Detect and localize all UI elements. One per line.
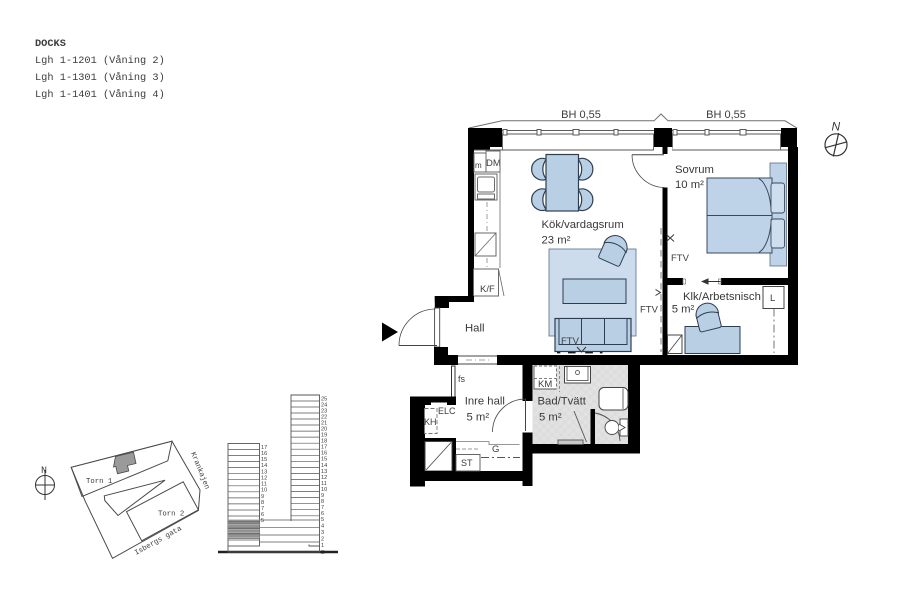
svg-text:FTV: FTV xyxy=(671,253,690,264)
svg-text:17: 17 xyxy=(321,445,327,451)
svg-text:Kök/vardagsrum: Kök/vardagsrum xyxy=(542,219,624,231)
svg-text:DM: DM xyxy=(486,158,501,169)
svg-text:11: 11 xyxy=(321,481,327,487)
svg-text:DOCKS: DOCKS xyxy=(35,38,66,50)
svg-text:5: 5 xyxy=(261,518,264,524)
svg-text:KH: KH xyxy=(424,417,437,427)
svg-text:Bad/Tvätt: Bad/Tvätt xyxy=(538,396,587,408)
svg-text:Krankajen: Krankajen xyxy=(188,451,210,491)
svg-text:2: 2 xyxy=(321,537,324,543)
svg-text:m: m xyxy=(475,161,482,170)
svg-text:1: 1 xyxy=(321,543,324,549)
svg-text:Inre hall: Inre hall xyxy=(465,396,505,408)
svg-text:Torn 2: Torn 2 xyxy=(158,511,184,519)
svg-text:G: G xyxy=(492,444,499,455)
svg-text:3: 3 xyxy=(321,530,324,536)
svg-text:5 m²: 5 m² xyxy=(539,412,562,424)
svg-text:BH 0,55: BH 0,55 xyxy=(706,109,746,121)
svg-text:BH 0,55: BH 0,55 xyxy=(561,109,601,121)
svg-text:KM: KM xyxy=(538,379,552,390)
svg-text:K/F: K/F xyxy=(480,284,495,295)
svg-text:Klk/Arbetsnisch: Klk/Arbetsnisch xyxy=(683,291,761,303)
svg-text:10 m²: 10 m² xyxy=(675,179,704,191)
svg-text:23 m²: 23 m² xyxy=(542,235,571,247)
svg-text:13: 13 xyxy=(321,469,327,475)
svg-text:5 m²: 5 m² xyxy=(467,412,490,424)
svg-text:Hall: Hall xyxy=(465,323,484,335)
svg-text:14: 14 xyxy=(261,463,267,469)
svg-text:Lgh 1-1401 (Våning 4): Lgh 1-1401 (Våning 4) xyxy=(35,88,165,101)
svg-text:4: 4 xyxy=(321,524,324,530)
svg-text:15: 15 xyxy=(321,457,327,463)
svg-text:5 m²: 5 m² xyxy=(672,304,695,316)
svg-text:Lgh 1-1301 (Våning 3): Lgh 1-1301 (Våning 3) xyxy=(35,71,165,84)
svg-text:ST: ST xyxy=(461,458,473,468)
svg-text:FTV: FTV xyxy=(561,336,580,347)
svg-text:Isbergs gata: Isbergs gata xyxy=(134,525,184,558)
svg-text:N: N xyxy=(41,466,47,477)
svg-text:ELC: ELC xyxy=(438,406,456,416)
svg-text:N: N xyxy=(832,120,841,134)
svg-text:19: 19 xyxy=(321,433,327,439)
svg-text:Sovrum: Sovrum xyxy=(675,164,714,176)
svg-text:L: L xyxy=(770,293,775,304)
svg-text:10: 10 xyxy=(261,488,267,494)
svg-text:FTV: FTV xyxy=(640,305,659,316)
svg-text:fs: fs xyxy=(458,374,466,384)
svg-text:5: 5 xyxy=(321,517,324,523)
svg-text:Torn 1: Torn 1 xyxy=(86,478,113,486)
svg-text:Lgh 1-1201 (Våning 2): Lgh 1-1201 (Våning 2) xyxy=(35,54,165,67)
